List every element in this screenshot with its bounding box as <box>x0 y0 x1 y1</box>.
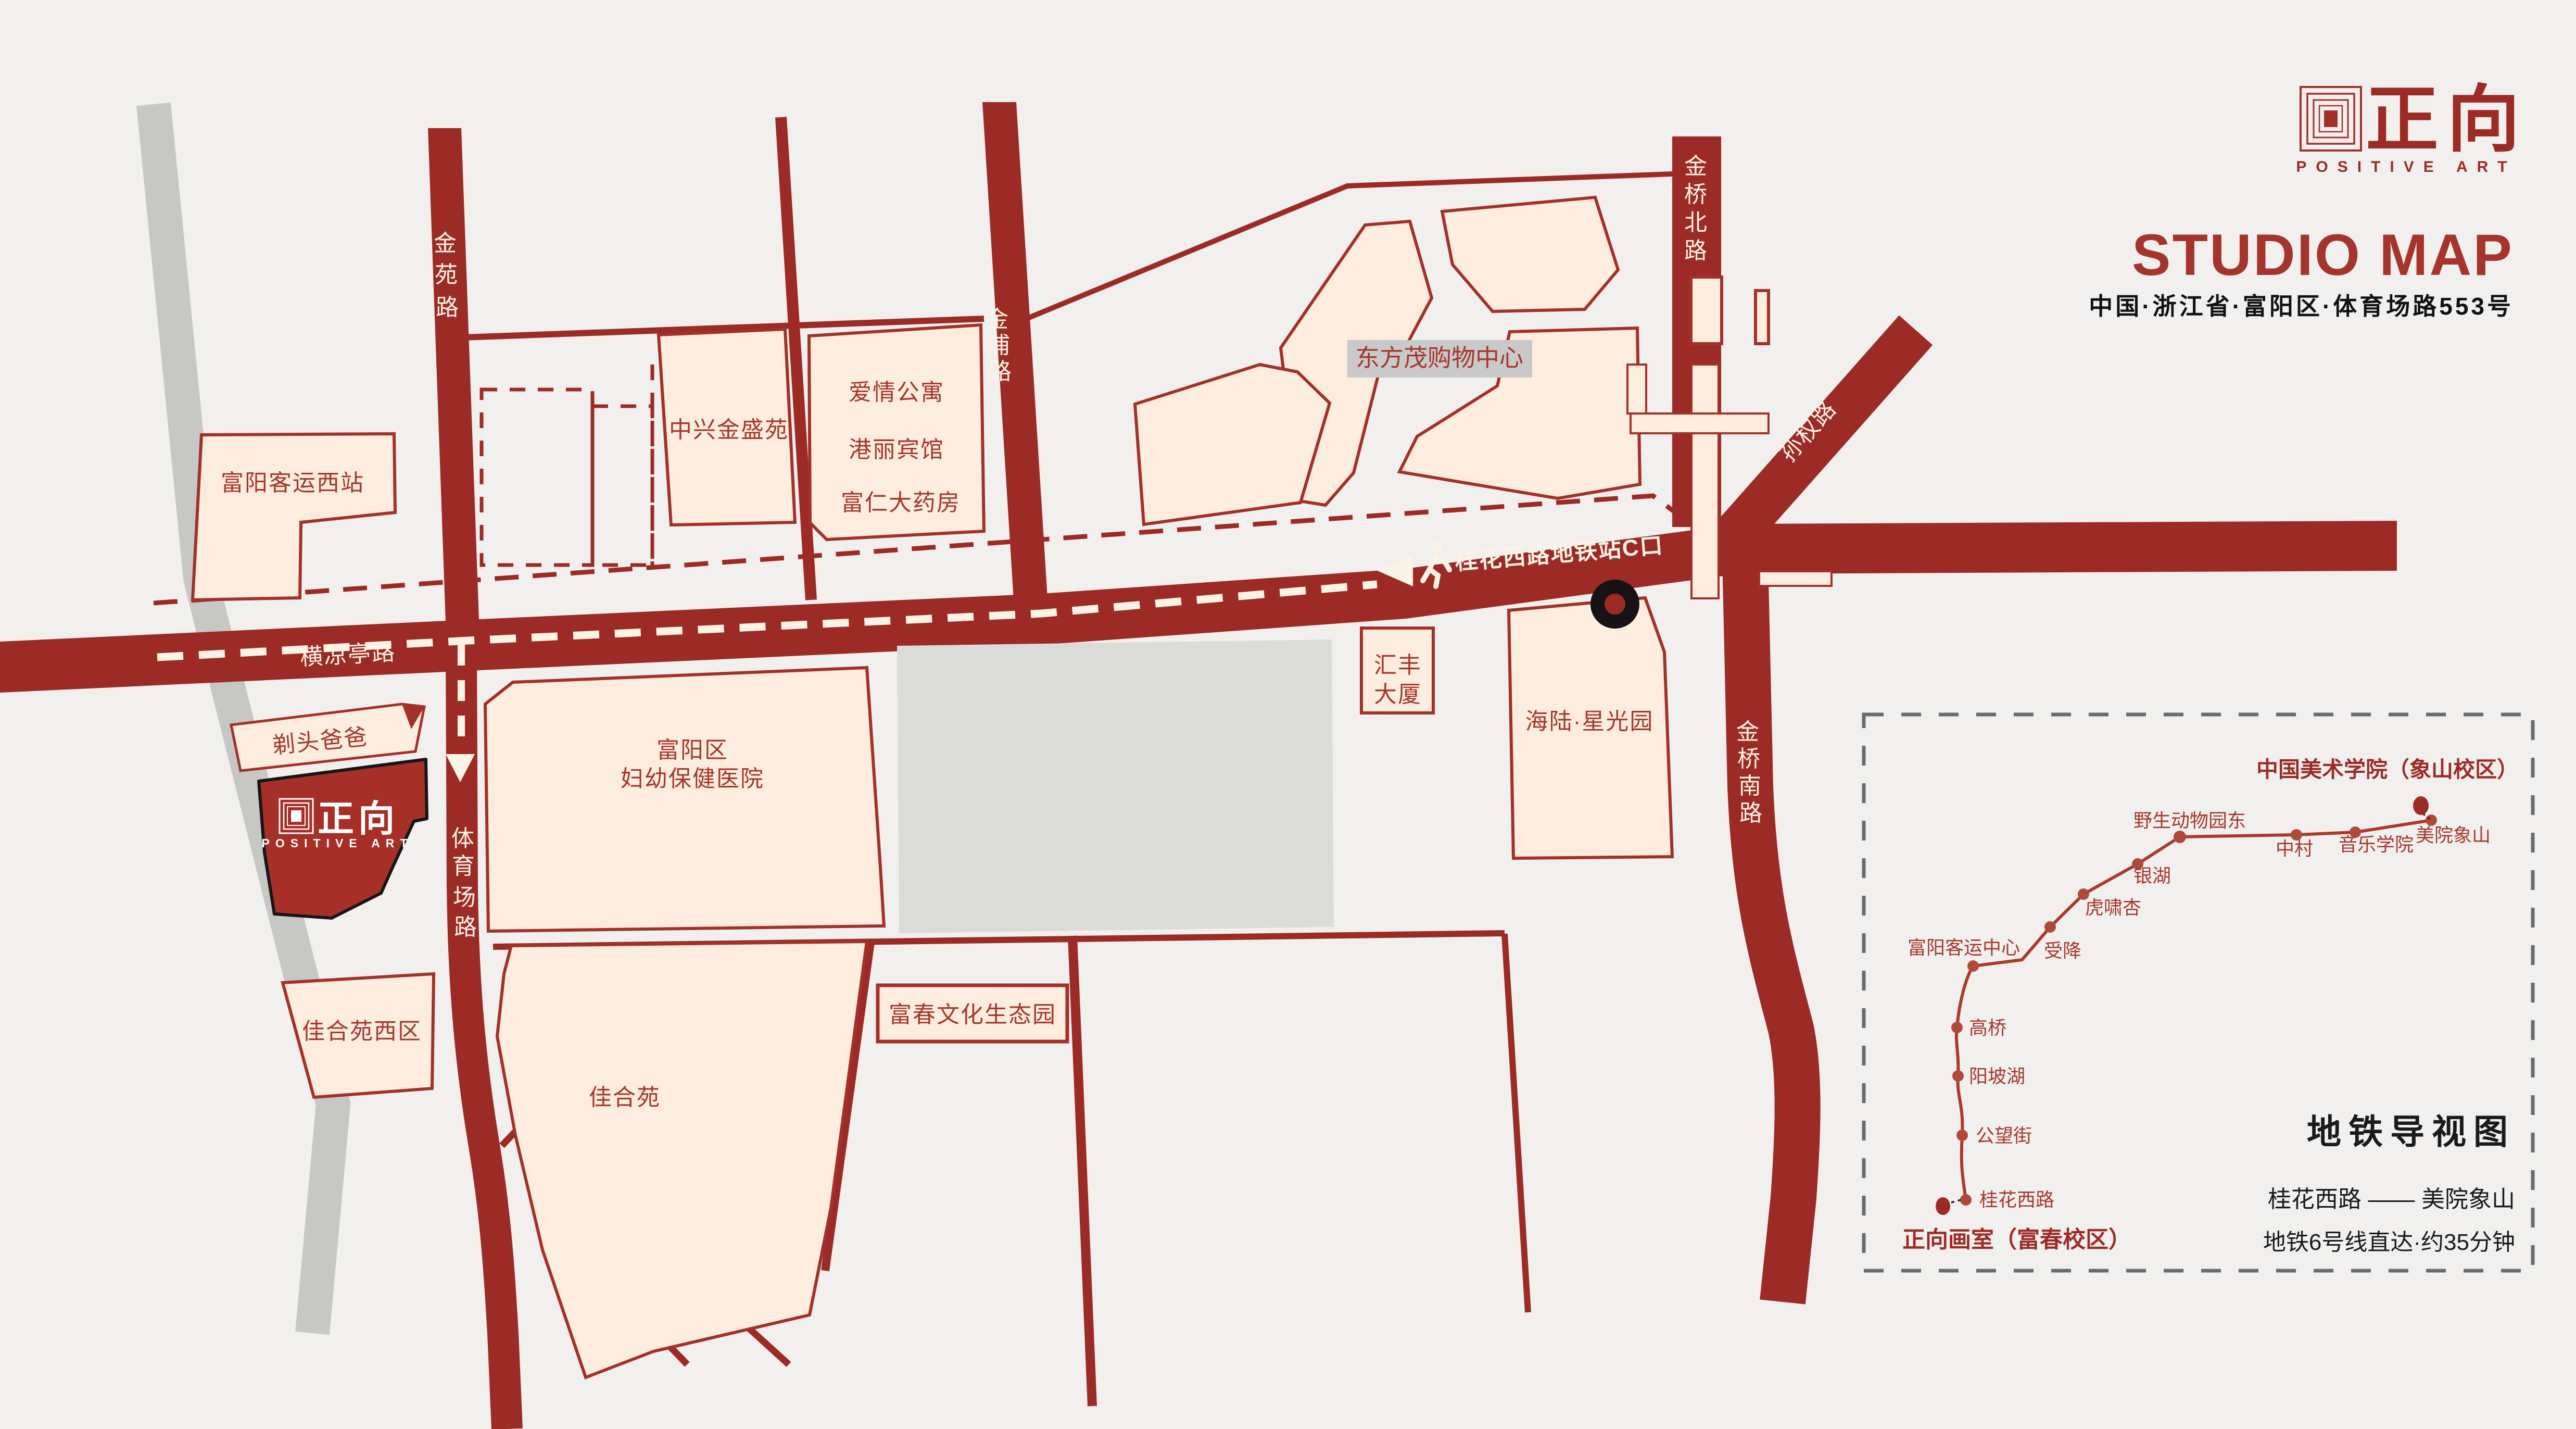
page-title: STUDIO MAP <box>2132 222 2514 287</box>
dongfangmao-label: 东方茂购物中心 <box>1356 344 1523 371</box>
terminal-dot-studio <box>1936 1197 1950 1215</box>
studio-logo-en: POSITIVE ART <box>262 836 413 850</box>
svg-text:金: 金 <box>434 231 458 256</box>
hospital-label-1: 富阳区 <box>656 737 728 763</box>
svg-text:场: 场 <box>453 885 477 910</box>
svg-text:路: 路 <box>989 359 1013 384</box>
svg-text:金: 金 <box>1736 719 1760 745</box>
svg-text:浦: 浦 <box>987 333 1011 358</box>
svg-text:桥: 桥 <box>1684 182 1708 207</box>
building-jinqiao-strip1 <box>1691 277 1722 344</box>
svg-text:受降: 受降 <box>2044 940 2081 961</box>
metro-panel-title: 地铁导视图 <box>2307 1112 2515 1151</box>
map-canvas: 东方茂购物中心 富阳客运西站 中兴金盛苑 爱情公寓 港丽宾馆 富仁大药房 汇丰 … <box>0 0 2576 1429</box>
terminal-label-studio: 正向画室（富春校区） <box>1902 1226 2131 1252</box>
studio-logo-cn: 正向 <box>318 798 399 839</box>
svg-text:虎啸杏: 虎啸杏 <box>2085 897 2141 918</box>
huifeng-label-2: 大厦 <box>1374 682 1422 707</box>
metro-exit-dot <box>1590 580 1639 629</box>
building-hospital <box>485 668 884 931</box>
studio-address: 中国·浙江省·富阳区·体育场路553号 <box>2089 293 2514 320</box>
svg-text:富阳客运中心: 富阳客运中心 <box>1908 937 2020 958</box>
furen-label: 富仁大药房 <box>841 490 961 516</box>
svg-text:桂花西路: 桂花西路 <box>1979 1189 2054 1210</box>
svg-text:体: 体 <box>451 826 475 851</box>
svg-text:银湖: 银湖 <box>2133 865 2171 886</box>
terminal-dot-academy <box>2413 796 2429 815</box>
jinyuan-road-label: 金 苑 路 <box>434 231 460 320</box>
terminal-label-academy: 中国美术学院（象山校区） <box>2256 757 2519 782</box>
brand-logo-en: POSITIVE ART <box>2296 158 2516 176</box>
aiqing-label: 爱情公寓 <box>849 380 944 405</box>
svg-text:音乐学院: 音乐学院 <box>2339 834 2414 855</box>
svg-text:路: 路 <box>1684 238 1708 264</box>
bus-station-label: 富阳客运西站 <box>221 470 364 496</box>
svg-text:桥: 桥 <box>1737 746 1761 772</box>
building-jinqiao-strip2 <box>1756 291 1769 344</box>
svg-text:野生动物园东: 野生动物园东 <box>2133 810 2246 831</box>
svg-text:公望街: 公望街 <box>1976 1125 2032 1146</box>
svg-text:苑: 苑 <box>435 262 459 287</box>
svg-text:路: 路 <box>454 914 478 940</box>
svg-text:南: 南 <box>1738 773 1762 799</box>
huifeng-label-1: 汇丰 <box>1374 653 1422 678</box>
jiaheyuan-west-label: 佳合苑西区 <box>302 1019 422 1044</box>
svg-text:路: 路 <box>1739 800 1763 826</box>
jinpu-road-label: 金 浦 路 <box>986 307 1013 384</box>
svg-text:中村: 中村 <box>2276 838 2313 859</box>
metro-panel-note: 地铁6号线直达·约35分钟 <box>2263 1230 2515 1255</box>
svg-text:北: 北 <box>1684 210 1708 235</box>
hospital-label-2: 妇幼保健医院 <box>621 766 764 792</box>
fuchun-park-label: 富春文化生态园 <box>889 1002 1056 1027</box>
studio-map-poster: 东方茂购物中心 富阳客运西站 中兴金盛苑 爱情公寓 港丽宾馆 富仁大药房 汇丰 … <box>0 0 2576 1429</box>
svg-text:高桥: 高桥 <box>1969 1017 2006 1038</box>
svg-text:金: 金 <box>1684 154 1708 179</box>
hailu-label: 海陆·星光园 <box>1525 709 1654 734</box>
metro-exit-dot-inner <box>1605 594 1625 615</box>
brand-logo-cn: 正向 <box>2366 79 2528 160</box>
jiaheyuan-label: 佳合苑 <box>589 1085 661 1110</box>
svg-text:金: 金 <box>986 307 1009 332</box>
svg-text:阳坡湖: 阳坡湖 <box>1969 1066 2025 1087</box>
svg-text:路: 路 <box>436 295 460 320</box>
svg-text:育: 育 <box>452 854 476 879</box>
metro-panel-route: 桂花西路 —— 美院象山 <box>2268 1186 2515 1212</box>
gangli-label: 港丽宾馆 <box>849 437 944 462</box>
svg-text:美院象山: 美院象山 <box>2416 824 2491 846</box>
gray-slab-block <box>897 640 1334 933</box>
studio-logo: 正向 POSITIVE ART <box>262 798 413 850</box>
zhongxing-label: 中兴金盛苑 <box>669 417 789 443</box>
